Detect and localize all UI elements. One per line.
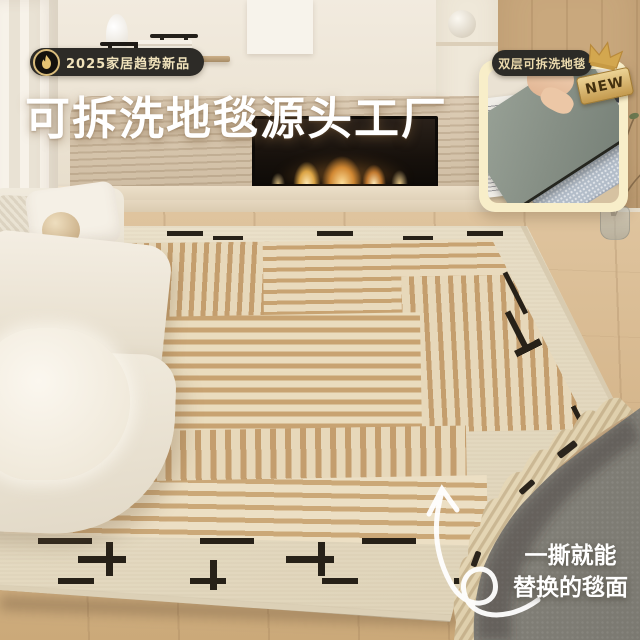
promo-badge: 2025家居趋势新品 <box>30 48 204 76</box>
callout-line1: 一撕就能 <box>513 540 628 572</box>
main-title: 可拆洗地毯源头工厂 <box>25 82 625 147</box>
product-photo: 双层可拆洗地毯 NEW 2025家居趋势新品 可拆洗地毯源头工厂 一撕就能 替换… <box>0 0 640 640</box>
card-tab-label: 双层可拆洗地毯 <box>498 55 586 72</box>
promo-badge-label: 2025家居趋势新品 <box>66 53 190 72</box>
callout-line2: 替换的毯面 <box>513 572 628 604</box>
callout-text: 一撕就能 替换的毯面 <box>513 540 628 604</box>
card-tab: 双层可拆洗地毯 <box>492 50 592 76</box>
flame-icon <box>33 49 60 76</box>
